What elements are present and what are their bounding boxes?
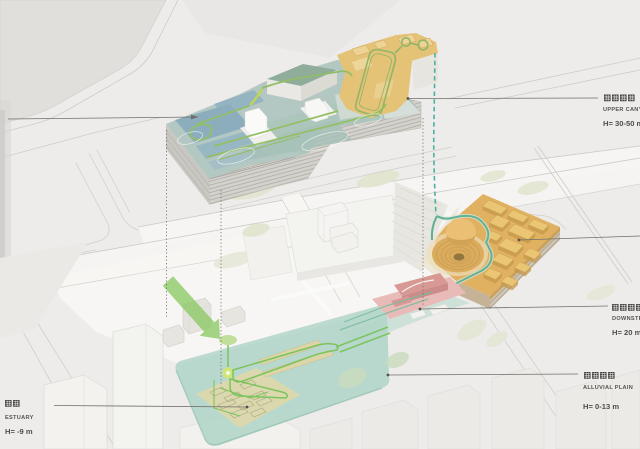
svg-text:UPPER CANYON: UPPER CANYON — [603, 107, 640, 113]
svg-text:H= -9 m: H= -9 m — [5, 427, 33, 436]
svg-text:H= 30-50 m: H= 30-50 m — [603, 119, 640, 128]
svg-text:ALLUVIAL PLAIN: ALLUVIAL PLAIN — [583, 385, 633, 391]
svg-text:H= 0-13 m: H= 0-13 m — [583, 402, 619, 411]
svg-text:H= 20 m: H= 20 m — [612, 328, 640, 337]
svg-text:ESTUARY: ESTUARY — [5, 415, 34, 421]
svg-text:DOWNSTREAM: DOWNSTREAM — [612, 316, 640, 322]
